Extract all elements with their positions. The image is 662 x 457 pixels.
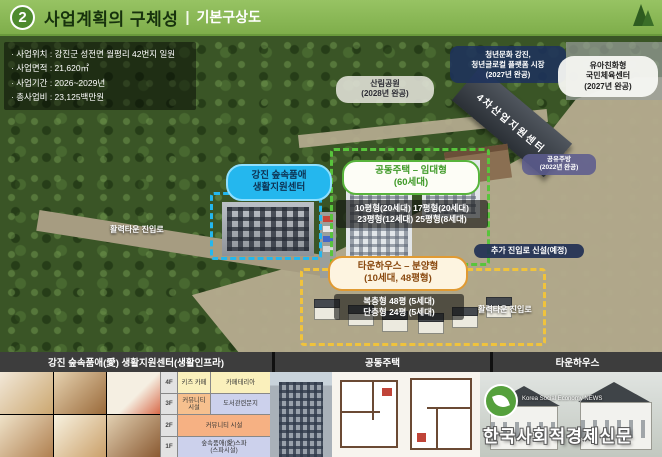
floor-use-cell: 커뮤니티 시설 bbox=[178, 415, 270, 436]
townhouse-detail-line2: 단층형 24평 (5세대) bbox=[334, 307, 464, 318]
interior-photo bbox=[107, 372, 160, 414]
section-number: 2 bbox=[18, 9, 26, 26]
forest-park-callout: 산림공원 (2028년 완공) bbox=[336, 76, 434, 103]
floor-label: 3F bbox=[161, 394, 178, 415]
support-center-zone-outline bbox=[210, 192, 322, 260]
youth-platform-year: (2027년 완공) bbox=[450, 70, 566, 80]
info-line-period: · 사업기간 : 2026~2029년 bbox=[11, 76, 189, 90]
apartment-title: 공동주택 – 임대형 bbox=[344, 165, 478, 177]
apartment-floor-plans bbox=[332, 372, 480, 457]
project-info-box: · 사업위치 : 강진군 성전면 월평리 42번지 일원 · 사업면적 : 21… bbox=[4, 42, 196, 110]
pine-tree-icon bbox=[642, 10, 654, 26]
plan-wall bbox=[436, 407, 438, 448]
header-bar: 2 사업계획의 구체성 | 기본구상도 bbox=[0, 0, 662, 36]
watermark-agency: Korea Social Economy NEWS bbox=[522, 396, 602, 402]
table-row: 1F 숲속품애(愛)스파 (스파시설) bbox=[161, 437, 270, 457]
info-line-budget: · 총사업비 : 23,125백만원 bbox=[11, 90, 189, 104]
shared-kitchen-year: (2022년 완공) bbox=[522, 164, 596, 172]
section-title-apartment: 공동주택 bbox=[275, 352, 490, 372]
plan-kitchen bbox=[417, 433, 426, 442]
floor-use-cell: 숲속품애(愛)스파 (스파시설) bbox=[178, 437, 270, 457]
support-center-callout: 강진 숲속품애 생활지원센터 bbox=[226, 164, 332, 201]
news-logo-icon bbox=[484, 384, 518, 418]
new-access-road-callout: 추가 진입로 신설(예정) bbox=[474, 244, 584, 258]
interior-photo bbox=[54, 415, 107, 457]
plan-wall bbox=[372, 382, 374, 420]
section-headers: 강진 숲속품애(愛) 생활지원센터(생활인프라) 공동주택 타운하우스 bbox=[0, 352, 662, 372]
floor-label: 4F bbox=[161, 372, 178, 393]
watermark-name: 한국사회적경제신문 bbox=[483, 422, 633, 447]
table-row: 2F 커뮤니티 시설 bbox=[161, 415, 270, 437]
floor-use-table: 4F 키즈 카페 카페테리아 3F 커뮤니티 시설 도서관련문지 2F 커뮤니티… bbox=[160, 372, 270, 457]
youth-platform-line1: 청년문화 강진, bbox=[450, 50, 566, 60]
table-row: 3F 커뮤니티 시설 도서관련문지 bbox=[161, 394, 270, 416]
spa-line2: (스파시설) bbox=[210, 447, 237, 454]
floor-use-cell: 카페테리아 bbox=[210, 372, 270, 393]
townhouse-renderings: Korea Social Economy NEWS 한국사회적경제신문 bbox=[480, 372, 662, 457]
plan-wall bbox=[427, 407, 471, 409]
floor-plan bbox=[340, 380, 398, 448]
sports-center-callout: 유아친화형 국민체육센터 (2027년 완공) bbox=[558, 56, 658, 97]
access-road-label-right: 활력타운 진입로 bbox=[478, 304, 532, 315]
townhouse-callout: 타운하우스 – 분양형 (10세대, 48평형) bbox=[328, 256, 468, 291]
floor-plan bbox=[410, 378, 472, 450]
bottom-strip: 강진 숲속품애(愛) 생활지원센터(생활인프라) 공동주택 타운하우스 4F 키… bbox=[0, 352, 662, 457]
pine-trees-icon bbox=[633, 4, 654, 26]
support-center-line2: 생활지원센터 bbox=[228, 182, 330, 194]
support-center-exterior-photo bbox=[270, 372, 332, 457]
page-title: 사업계획의 구체성 bbox=[44, 5, 178, 30]
sports-center-year: (2027년 완공) bbox=[558, 82, 658, 92]
floor-label: 2F bbox=[161, 415, 178, 436]
title-separator: | bbox=[185, 9, 189, 26]
floor-label: 1F bbox=[161, 437, 178, 457]
forest-park-year: (2028년 완공) bbox=[336, 89, 434, 99]
section-number-badge: 2 bbox=[10, 5, 35, 30]
spa-line1: 숲속품애(愛)스파 bbox=[201, 440, 246, 447]
table-row: 4F 키즈 카페 카페테리아 bbox=[161, 372, 270, 394]
townhouse-title: 타운하우스 – 분양형 bbox=[330, 261, 466, 273]
apartment-detail-box: 10평형(20세대) 17평형(20세대) 23평형(12세대) 25평형(8세… bbox=[336, 200, 488, 228]
sports-center-line2: 국민체육센터 bbox=[558, 71, 658, 81]
info-line-area: · 사업면적 : 21,620㎡ bbox=[11, 61, 189, 75]
building-facade bbox=[279, 382, 322, 457]
apartment-detail-line1: 10평형(20세대) 17평형(20세대) bbox=[336, 203, 488, 214]
apartment-detail-line2: 23평형(12세대) 25평형(8세대) bbox=[336, 214, 488, 225]
floor-use-cell: 커뮤니티 시설 bbox=[178, 394, 210, 415]
industry-center-label: 4차산업지원센터 bbox=[474, 89, 549, 156]
youth-platform-callout: 청년문화 강진, 청년글로컬 플랫폼 시장 (2027년 완공) bbox=[450, 46, 566, 83]
interior-photo bbox=[54, 372, 107, 414]
info-line-location: · 사업위치 : 강진군 성전면 월평리 42번지 일원 bbox=[11, 47, 189, 61]
section-title-support-center: 강진 숲속품애(愛) 생활지원센터(생활인프라) bbox=[0, 352, 272, 372]
interior-photo bbox=[0, 372, 53, 414]
townhouse-detail-line1: 복층형 48평 (5세대) bbox=[334, 296, 464, 307]
support-center-line1: 강진 숲속품애 bbox=[228, 170, 330, 182]
shared-kitchen-callout: 공유주방 (2022년 완공) bbox=[522, 154, 596, 175]
sports-center-line1: 유아친화형 bbox=[558, 61, 658, 71]
floor-use-cell: 도서관련문지 bbox=[210, 394, 270, 415]
apartment-units: (60세대) bbox=[344, 177, 478, 189]
section-content: 4F 키즈 카페 카페테리아 3F 커뮤니티 시설 도서관련문지 2F 커뮤니티… bbox=[0, 372, 662, 457]
interior-photo-collage bbox=[0, 372, 160, 457]
interior-photo bbox=[107, 415, 160, 457]
leaf-icon bbox=[492, 392, 510, 410]
youth-platform-line2: 청년글로컬 플랫폼 시장 bbox=[450, 60, 566, 70]
section-title-townhouse: 타운하우스 bbox=[493, 352, 662, 372]
access-road-label-left: 활력타운 진입로 bbox=[110, 224, 164, 235]
site-plan-map: 4차산업지원센터 · 사업위치 : 강진군 성전면 월평리 42번지 일원 · … bbox=[0, 36, 662, 352]
apartment-callout: 공동주택 – 임대형 (60세대) bbox=[342, 160, 480, 195]
townhouse-units: (10세대, 48평형) bbox=[330, 273, 466, 285]
floor-use-cell: 키즈 카페 bbox=[178, 372, 210, 393]
townhouse-detail-box: 복층형 48평 (5세대) 단층형 24평 (5세대) bbox=[334, 294, 464, 320]
forest-park-name: 산림공원 bbox=[336, 79, 434, 89]
plan-kitchen bbox=[382, 388, 392, 396]
plan-wall bbox=[342, 411, 380, 413]
interior-photo bbox=[0, 415, 53, 457]
slide: 2 사업계획의 구체성 | 기본구상도 4차산업지원센터 bbox=[0, 0, 662, 457]
page-subtitle: 기본구상도 bbox=[197, 7, 261, 27]
